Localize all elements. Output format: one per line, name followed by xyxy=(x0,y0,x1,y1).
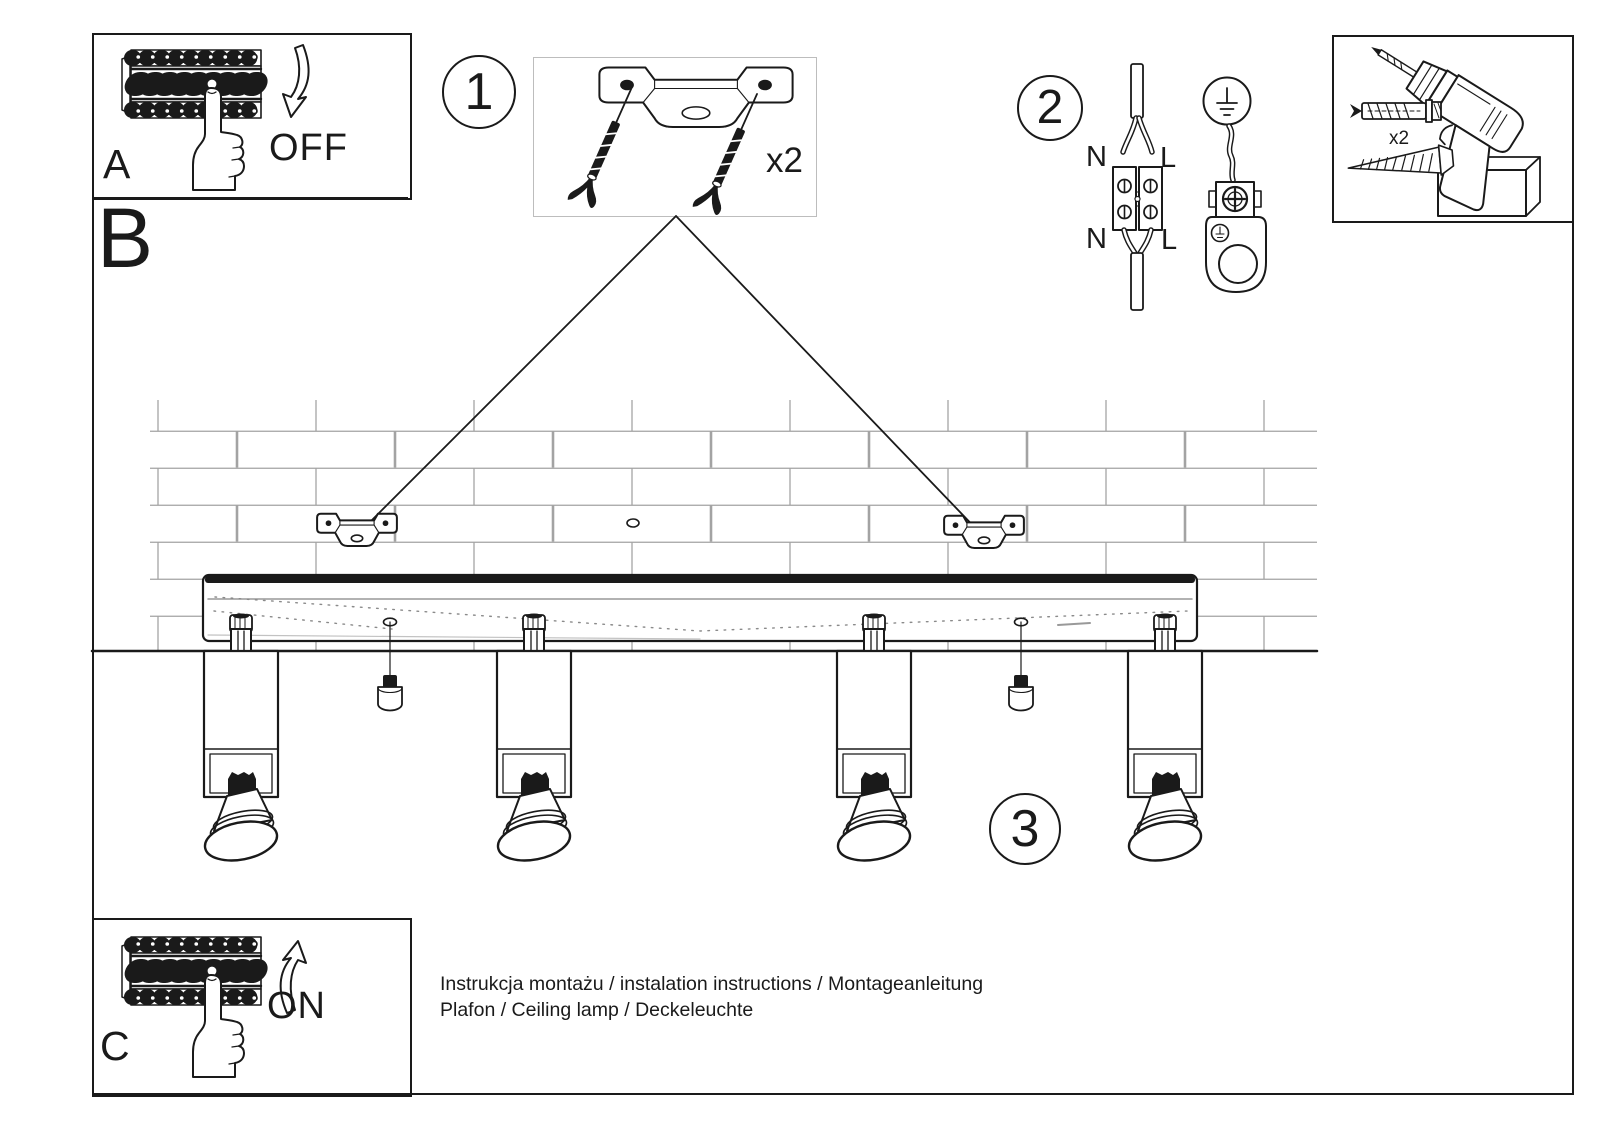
wire-label-neutral-bottom: N xyxy=(1086,225,1107,254)
wire-label-live-bottom: L xyxy=(1161,226,1177,255)
step-2-number: 2 xyxy=(1037,84,1064,132)
fixing-quantity-label: x2 xyxy=(1389,129,1409,148)
section-c-frame xyxy=(92,918,412,1097)
bracket-quantity-label: x2 xyxy=(766,143,803,178)
mains-cable-top xyxy=(1131,64,1143,118)
section-b-label: B xyxy=(97,196,153,280)
section-c-label: C xyxy=(100,1026,130,1067)
footer-title-line1: Instrukcja montażu / instalation instruc… xyxy=(440,975,983,995)
step-2-badge: 2 xyxy=(1017,75,1083,141)
footer-title-line2: Plafon / Ceiling lamp / Deckeleuchte xyxy=(440,1001,753,1021)
power-on-label: ON xyxy=(267,987,326,1025)
step-1-badge: 1 xyxy=(442,55,516,129)
ground-symbol-icon xyxy=(1204,78,1251,125)
instruction-sheet: 1 2 3 A OFF B C ON x2 x2 N L N L Instruk… xyxy=(0,0,1600,1131)
power-off-label: OFF xyxy=(269,129,348,167)
wire-label-neutral-top: N xyxy=(1086,143,1107,172)
bracket-parts-box xyxy=(533,57,817,217)
section-a-frame xyxy=(92,33,412,200)
step-3-number: 3 xyxy=(1011,803,1040,855)
step-1-number: 1 xyxy=(465,66,494,118)
tools-box xyxy=(1332,35,1574,223)
wire-label-live-top: L xyxy=(1160,144,1176,173)
step-3-badge: 3 xyxy=(989,793,1061,865)
section-a-label: A xyxy=(103,144,130,185)
